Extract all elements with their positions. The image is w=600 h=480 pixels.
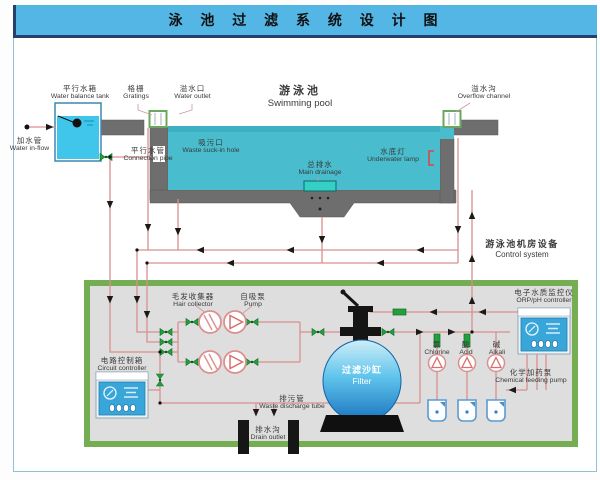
label-main-drainage: 总排水 Main drainage <box>290 160 350 177</box>
grating-left-icon <box>150 111 167 127</box>
label-underwater-lamp: 水底灯 Underwater lamp <box>360 147 426 164</box>
label-drain-outlet: 排水沟 Drain outlet <box>240 425 296 442</box>
orp-controller-box <box>518 308 570 354</box>
chemical-tank-1 <box>428 400 446 421</box>
label-pump: 自吸泵 Pump <box>232 292 274 309</box>
label-water-outlet: 溢水口 Water outlet <box>165 84 220 101</box>
pump-2 <box>224 351 246 373</box>
pump-1 <box>224 311 246 333</box>
label-control-system: 游泳池机房设备 Control system <box>468 239 576 259</box>
label-circuit-controller: 电路控制箱 Circuit controller <box>90 356 154 373</box>
balance-tank <box>55 103 101 161</box>
label-alkali: 碱 Alkali <box>481 340 513 357</box>
label-gratings: 格栅 Gratings <box>112 84 160 101</box>
inflow-fitting-icon <box>25 125 30 130</box>
chemical-tank-3 <box>487 400 505 421</box>
label-swimming-pool: 游泳池 Swimming pool <box>250 85 350 110</box>
label-orp-controller: 电子水质监控仪 ORP/pH controller <box>504 288 584 305</box>
label-chlorine: 氯 Chlorine <box>420 340 454 357</box>
hair-collector-2 <box>199 351 221 373</box>
circuit-controller-box <box>96 372 148 418</box>
label-connection-pipe: 平行水管 Connection pipe <box>116 146 180 163</box>
label-hair-collector: 毛发收集器 Hair collector <box>160 292 226 309</box>
label-waste-discharge: 排污管 Waste discharge tube <box>250 394 334 411</box>
grating-right-icon <box>444 111 461 127</box>
label-filter: 过滤沙缸 Filter <box>330 365 394 386</box>
diagram-canvas: 泳 池 过 滤 系 统 设 计 图 <box>0 0 600 480</box>
label-waste-suckin: 吸污口 Waste suck-in hole <box>172 138 250 155</box>
chemical-tank-2 <box>458 400 476 421</box>
hair-collector-1 <box>199 311 221 333</box>
label-overflow-channel: 溢水沟 Overflow channel <box>448 84 520 101</box>
label-chemical-feeding-pump: 化学加药泵 Chemical feeding pump <box>488 368 574 385</box>
label-water-inflow: 加水管 Water in-flow <box>2 136 57 153</box>
float-ball-icon <box>73 119 82 128</box>
label-balance-tank: 平行水箱 Water balance tank <box>40 84 120 101</box>
label-acid: 酸 Acid <box>450 340 482 357</box>
